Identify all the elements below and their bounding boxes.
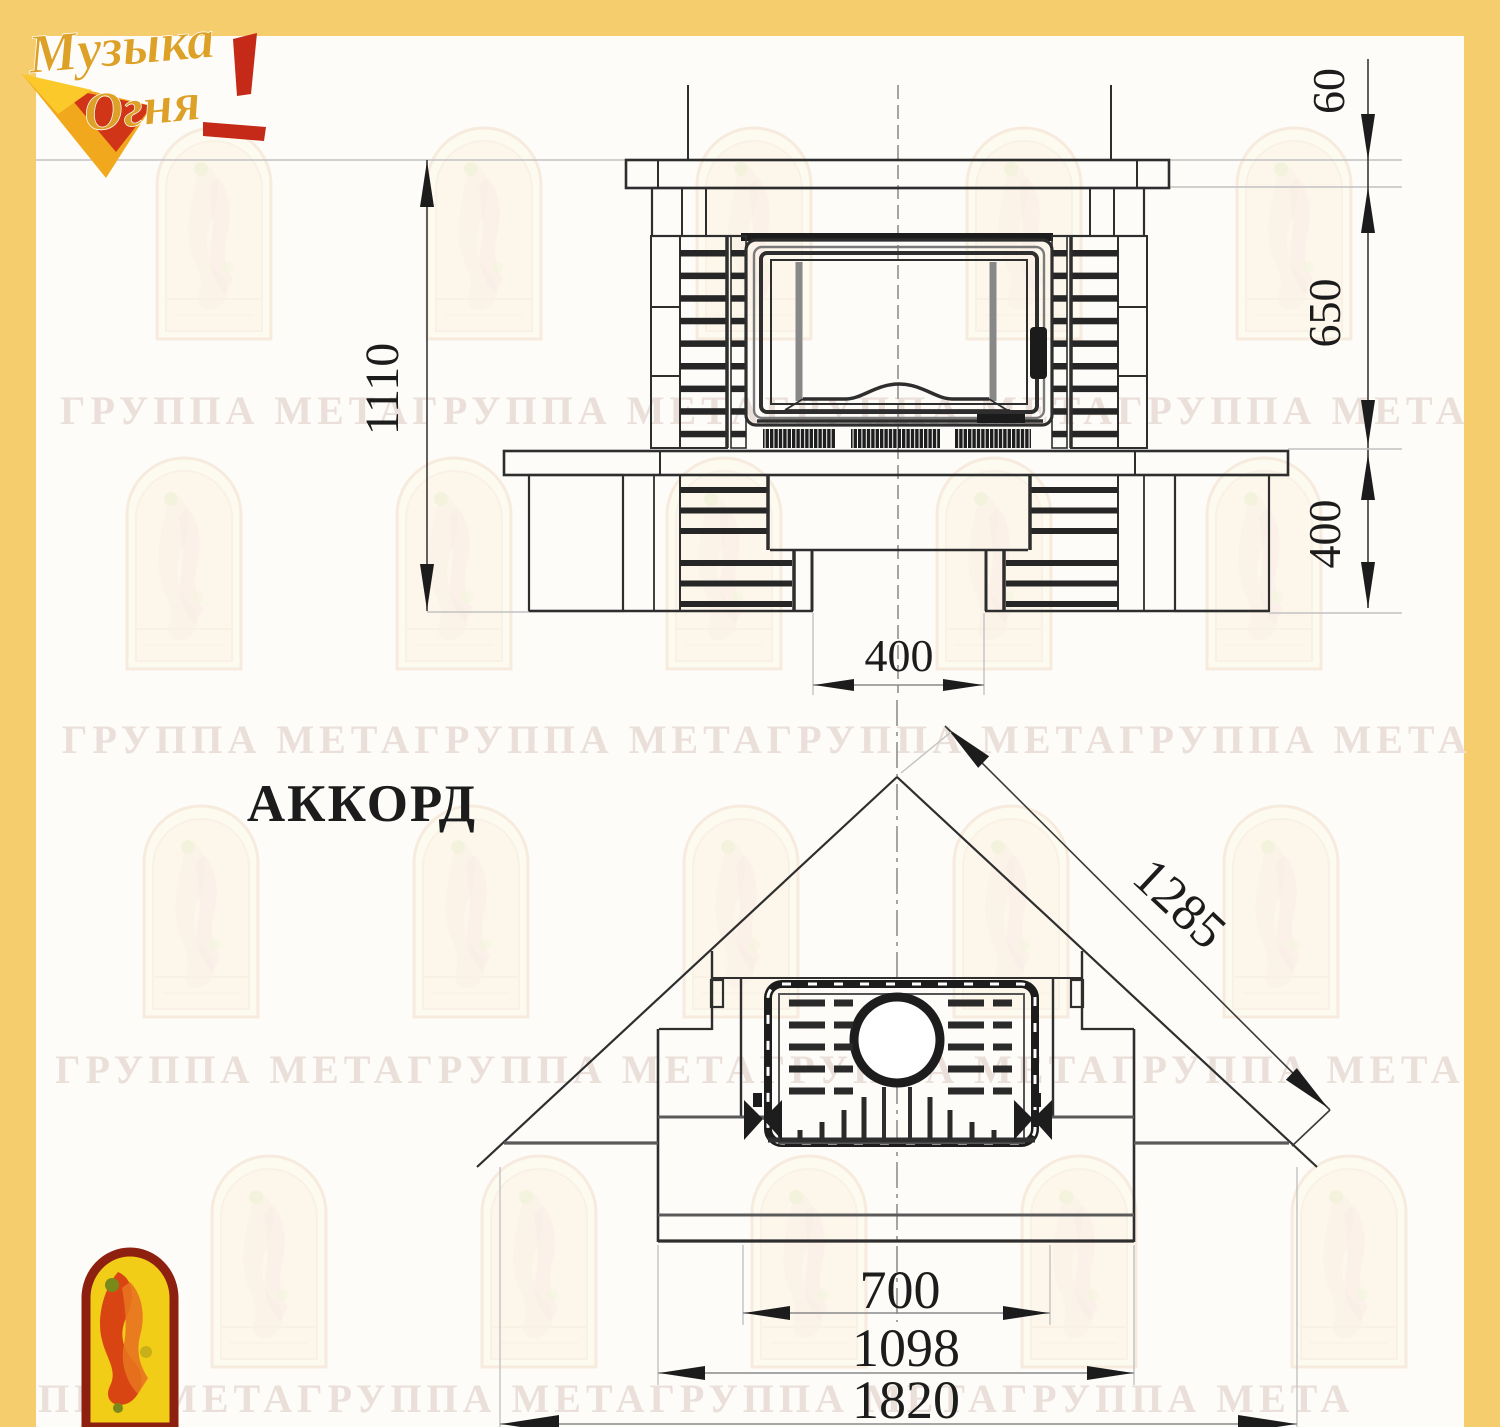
svg-text:Огня: Огня	[81, 71, 203, 143]
svg-text:650: 650	[1299, 279, 1350, 348]
svg-text:ППА МЕТАГРУППА МЕТАГРУППА МЕТА: ППА МЕТАГРУППА МЕТАГРУППА МЕТАГРУППА МЕТ…	[38, 1376, 1354, 1421]
svg-text:ГРУППА МЕТАГРУППА МЕТАГРУППА М: ГРУППА МЕТАГРУППА МЕТАГРУППА МЕТАГРУППА …	[62, 717, 1471, 762]
svg-text:1820: 1820	[852, 1370, 960, 1427]
svg-text:60: 60	[1303, 68, 1354, 114]
svg-text:1285: 1285	[1122, 848, 1237, 961]
svg-text:1110: 1110	[356, 343, 409, 435]
svg-text:ГРУППА МЕТАГРУППА МЕТАГРУППА М: ГРУППА МЕТАГРУППА МЕТАГРУППА МЕТАГРУППА …	[55, 1047, 1464, 1092]
svg-text:1098: 1098	[852, 1318, 960, 1378]
svg-text:400: 400	[865, 630, 934, 681]
svg-text:700: 700	[860, 1260, 941, 1320]
svg-text:400: 400	[1299, 500, 1350, 569]
svg-text:АККОРД: АККОРД	[247, 775, 477, 833]
